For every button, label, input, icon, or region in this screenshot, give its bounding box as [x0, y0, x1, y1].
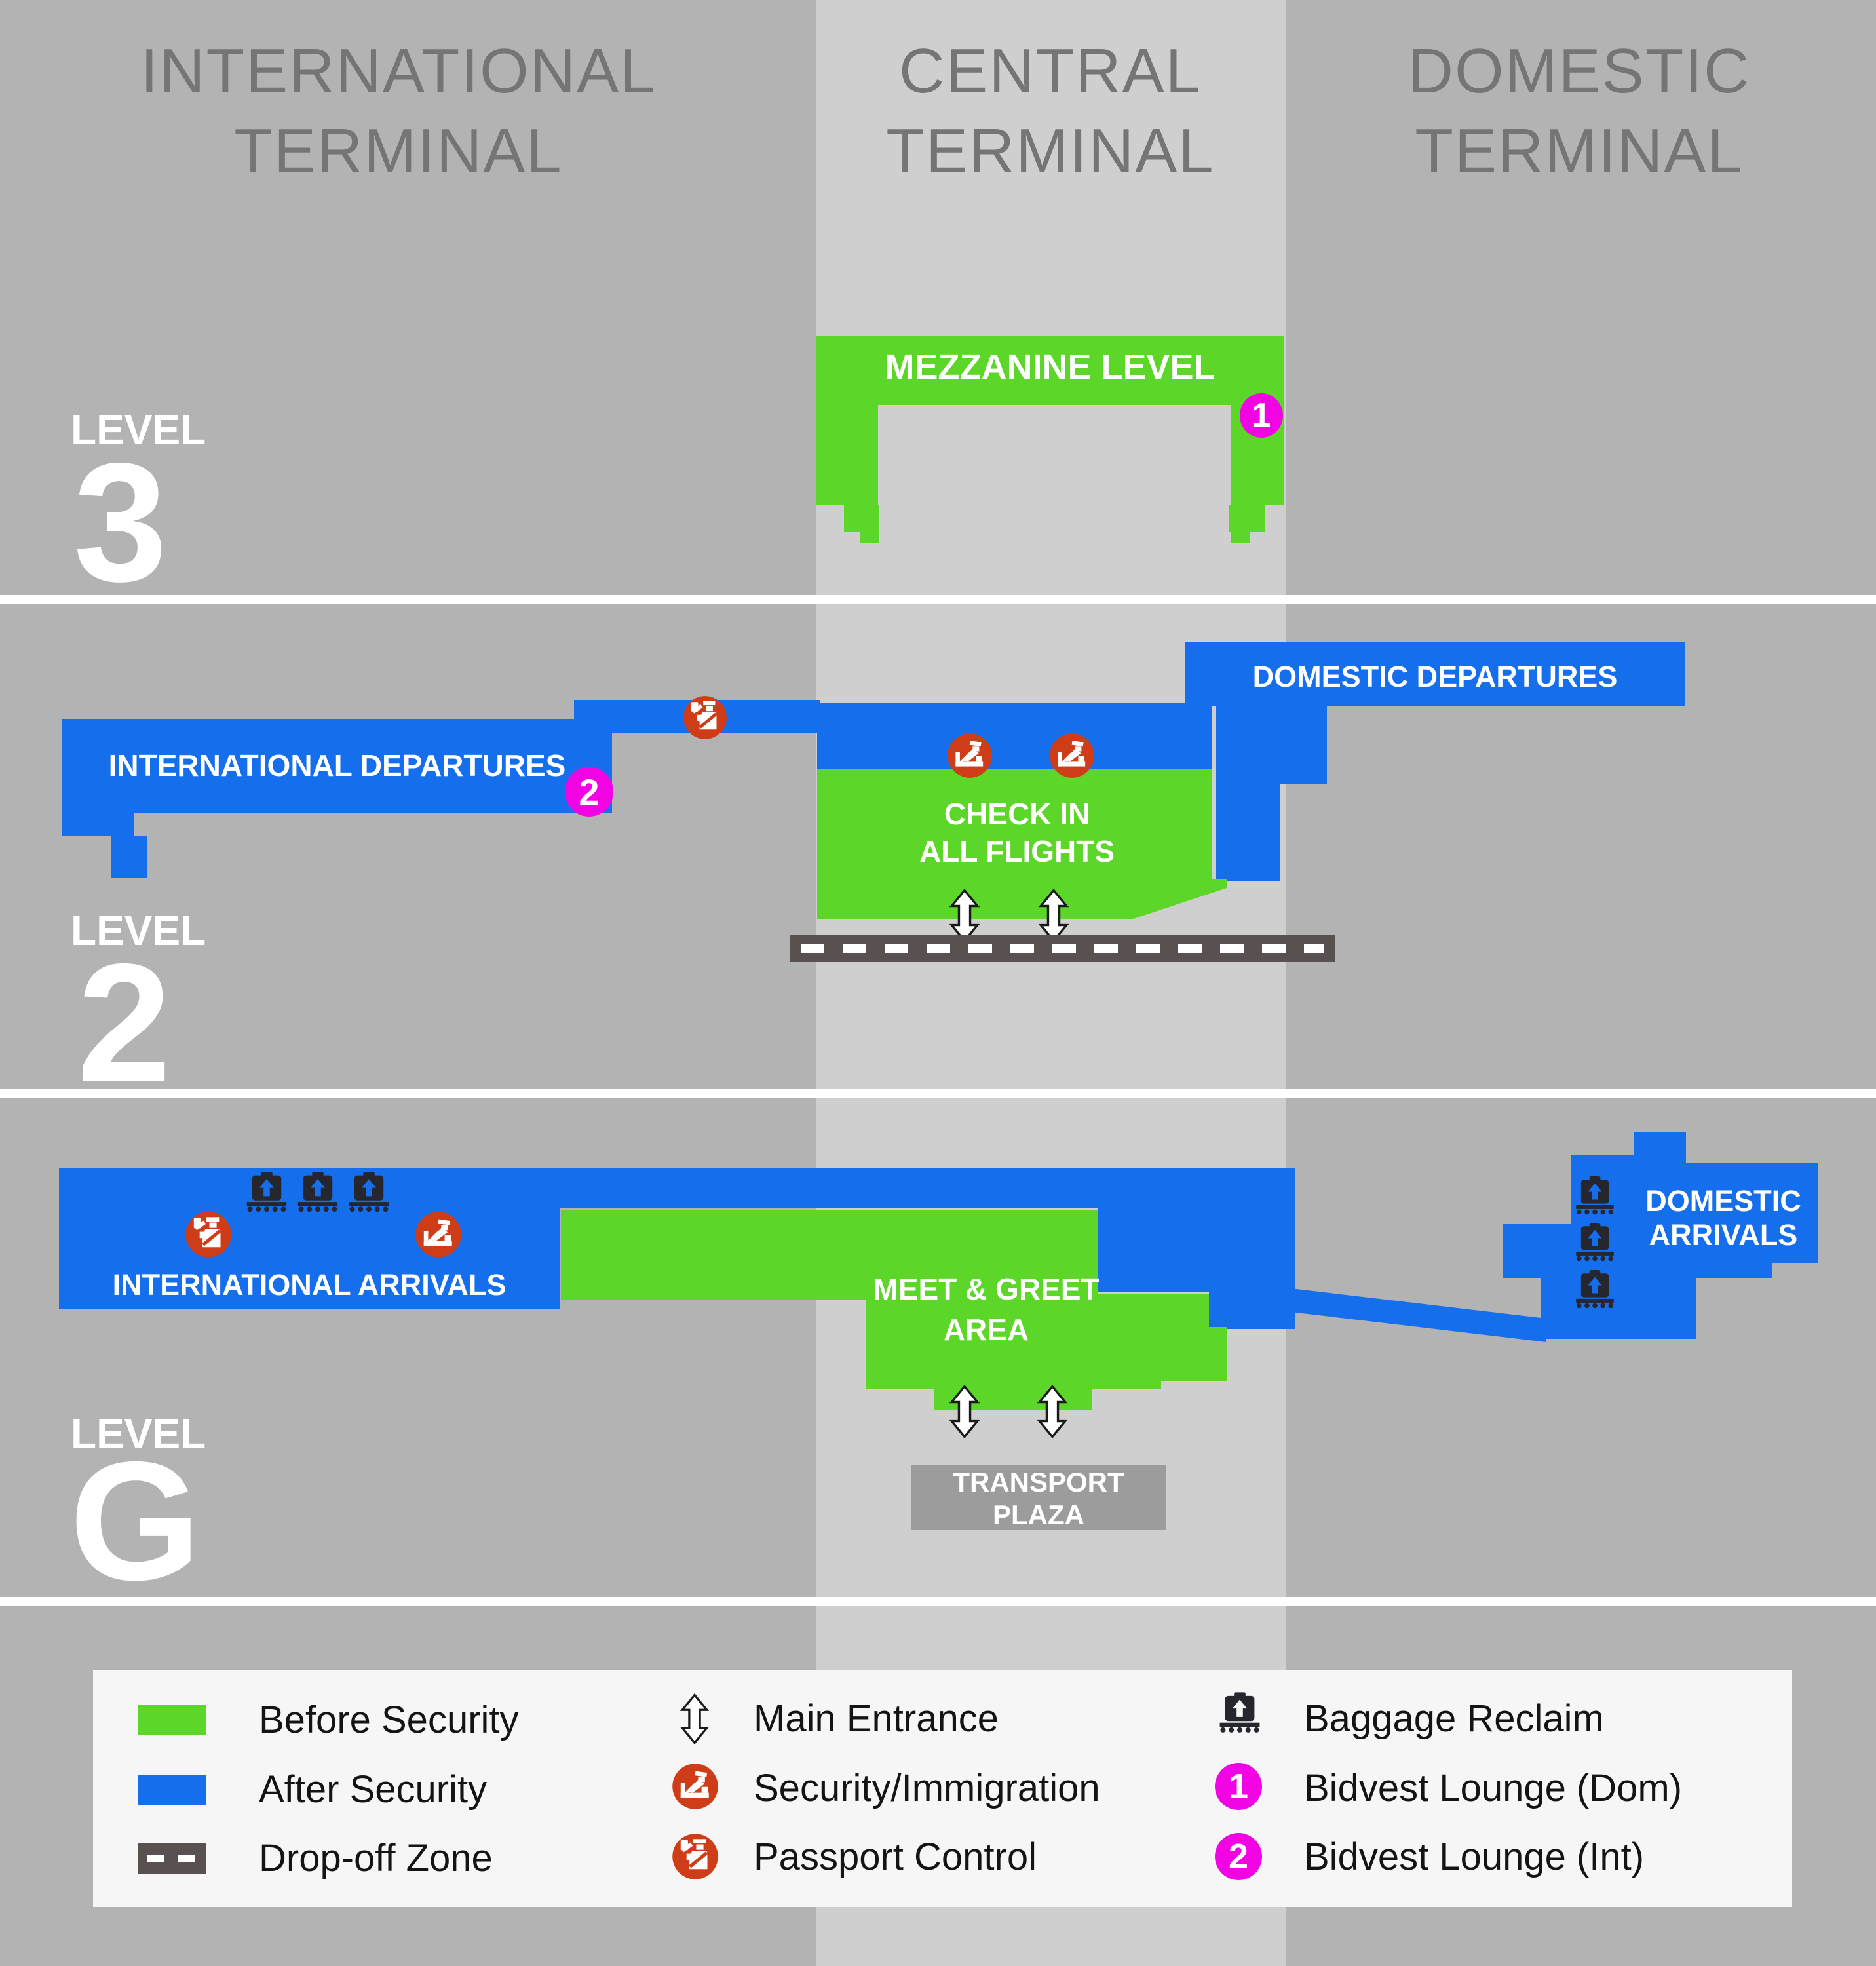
- baggage-reclaim-icon: [1570, 1270, 1620, 1309]
- baggage-reclaim-label: Baggage Reclaim: [1304, 1700, 1604, 1738]
- mezzanine-notch: [1231, 532, 1250, 543]
- bidvest-dom-label: Bidvest Lounge (Dom): [1304, 1769, 1682, 1807]
- header-domestic-terminal: DOMESTIC TERMINAL: [1408, 31, 1751, 191]
- levelg-number: G: [69, 1436, 201, 1606]
- level-divider: [0, 1597, 1876, 1606]
- bidvest-lounge-dom-badge: 1: [1240, 393, 1283, 438]
- domestic-arrivals-walkway: [1291, 1284, 1550, 1347]
- intl-departures-step: [111, 836, 147, 878]
- domestic-arrivals-area: [1634, 1132, 1686, 1155]
- level-divider: [0, 595, 1876, 604]
- bidvest-lounge-dom-badge: 1: [1215, 1763, 1262, 1810]
- mezzanine-label: MEZZANINE LEVEL: [816, 349, 1284, 385]
- intl-arrivals-text: INTERNATIONAL ARRIVALS: [113, 1268, 507, 1301]
- checkin-line1: CHECK IN: [817, 796, 1217, 833]
- checkin-line2: ALL FLIGHTS: [817, 833, 1217, 870]
- header-international-terminal: INTERNATIONAL TERMINAL: [141, 31, 657, 191]
- security-immigration-label: Security/Immigration: [754, 1769, 1100, 1807]
- baggage-reclaim-icon: [1214, 1692, 1266, 1733]
- main-entrance-arrow-icon: [1038, 889, 1069, 942]
- main-entrance-arrow-icon: [949, 1385, 980, 1438]
- transport-plaza-line2: PLAZA: [911, 1499, 1166, 1532]
- header-line: TERMINAL: [886, 111, 1214, 191]
- security-immigration-icon: [414, 1210, 463, 1259]
- mezzanine-notch: [1229, 505, 1265, 532]
- main-entrance-arrow-icon: [949, 889, 980, 942]
- intl-departures-text: INTERNATIONAL DEPARTURES: [109, 748, 566, 782]
- main-entrance-arrow-icon: [678, 1693, 711, 1744]
- domestic-departures-text: DOMESTIC DEPARTURES: [1253, 660, 1618, 693]
- dropoff-zone-label: Drop-off Zone: [259, 1840, 493, 1878]
- header-line: DOMESTIC: [1408, 31, 1751, 111]
- mezzanine-leg-left: [816, 405, 878, 505]
- checkin-label: CHECK IN ALL FLIGHTS: [817, 796, 1217, 870]
- header-line: CENTRAL: [886, 31, 1214, 111]
- level-divider: [0, 1089, 1876, 1098]
- header-line: TERMINAL: [141, 111, 657, 191]
- passport-control-label: Passport Control: [754, 1838, 1037, 1876]
- meet-greet-line1: MEET & GREET: [816, 1269, 1157, 1309]
- baggage-reclaim-icon: [1570, 1176, 1620, 1215]
- meet-greet-line2: AREA: [816, 1309, 1157, 1350]
- header-line: TERMINAL: [1408, 111, 1751, 191]
- baggage-reclaim-icon: [240, 1172, 293, 1212]
- transport-plaza-box: TRANSPORT PLAZA: [911, 1465, 1166, 1530]
- passport-control-icon: [682, 695, 728, 741]
- intl-departures-step: [62, 813, 134, 836]
- dash: [178, 1855, 195, 1862]
- passport-control-icon: [671, 1832, 719, 1881]
- main-entrance-label: Main Entrance: [754, 1700, 999, 1738]
- domestic-departures-connector: [1216, 706, 1327, 784]
- level2-number: 2: [77, 938, 172, 1108]
- header-line: INTERNATIONAL: [141, 31, 657, 111]
- domestic-departures-label: DOMESTIC DEPARTURES: [1185, 659, 1685, 695]
- mezzanine-notch: [860, 532, 879, 543]
- dropoff-zone-swatch: [138, 1843, 206, 1874]
- before-security-swatch: [138, 1705, 206, 1735]
- security-immigration-icon: [1048, 732, 1096, 779]
- after-security-label: After Security: [259, 1771, 487, 1809]
- after-security-swatch: [138, 1775, 206, 1805]
- dropoff-zone-road: [790, 935, 1335, 962]
- intl-arrivals-label: INTERNATIONAL ARRIVALS: [59, 1267, 560, 1303]
- baggage-reclaim-icon: [1570, 1223, 1620, 1262]
- passport-control-icon: [184, 1210, 233, 1259]
- header-central-terminal: CENTRAL TERMINAL: [886, 31, 1214, 191]
- levelg-corridor: [560, 1168, 1098, 1208]
- intl-departures-label: INTERNATIONAL DEPARTURES: [62, 747, 612, 784]
- domestic-arrivals-label: DOMESTIC ARRIVALS: [1638, 1184, 1809, 1252]
- mezzanine-notch: [844, 505, 879, 532]
- bidvest-lounge-int-badge: 2: [1215, 1833, 1262, 1880]
- airport-terminal-map: INTERNATIONAL TERMINAL CENTRAL TERMINAL …: [0, 0, 1876, 1966]
- checkin-blue-block: [817, 703, 1212, 771]
- domestic-arrivals-line2: ARRIVALS: [1638, 1218, 1809, 1252]
- security-immigration-icon: [671, 1762, 719, 1811]
- meet-greet-label: MEET & GREET AREA: [816, 1269, 1157, 1350]
- badge-number: 1: [1229, 1766, 1248, 1807]
- badge-number: 2: [579, 771, 599, 813]
- bidvest-int-label: Bidvest Lounge (Int): [1304, 1838, 1644, 1876]
- bidvest-lounge-int-badge: 2: [565, 767, 613, 817]
- security-immigration-icon: [946, 732, 993, 779]
- dash: [147, 1855, 164, 1862]
- baggage-reclaim-icon: [343, 1172, 395, 1212]
- baggage-reclaim-icon: [292, 1172, 344, 1212]
- before-security-label: Before Security: [259, 1701, 519, 1739]
- domestic-arrivals-line1: DOMESTIC: [1638, 1184, 1809, 1218]
- badge-number: 2: [1229, 1836, 1248, 1877]
- transport-plaza-line1: TRANSPORT: [911, 1466, 1166, 1499]
- road-dashes: [801, 944, 1324, 953]
- mezzanine-label-text: MEZZANINE LEVEL: [885, 347, 1215, 387]
- level3-number: 3: [73, 438, 168, 607]
- main-entrance-arrow-icon: [1037, 1385, 1068, 1438]
- badge-number: 1: [1252, 396, 1271, 435]
